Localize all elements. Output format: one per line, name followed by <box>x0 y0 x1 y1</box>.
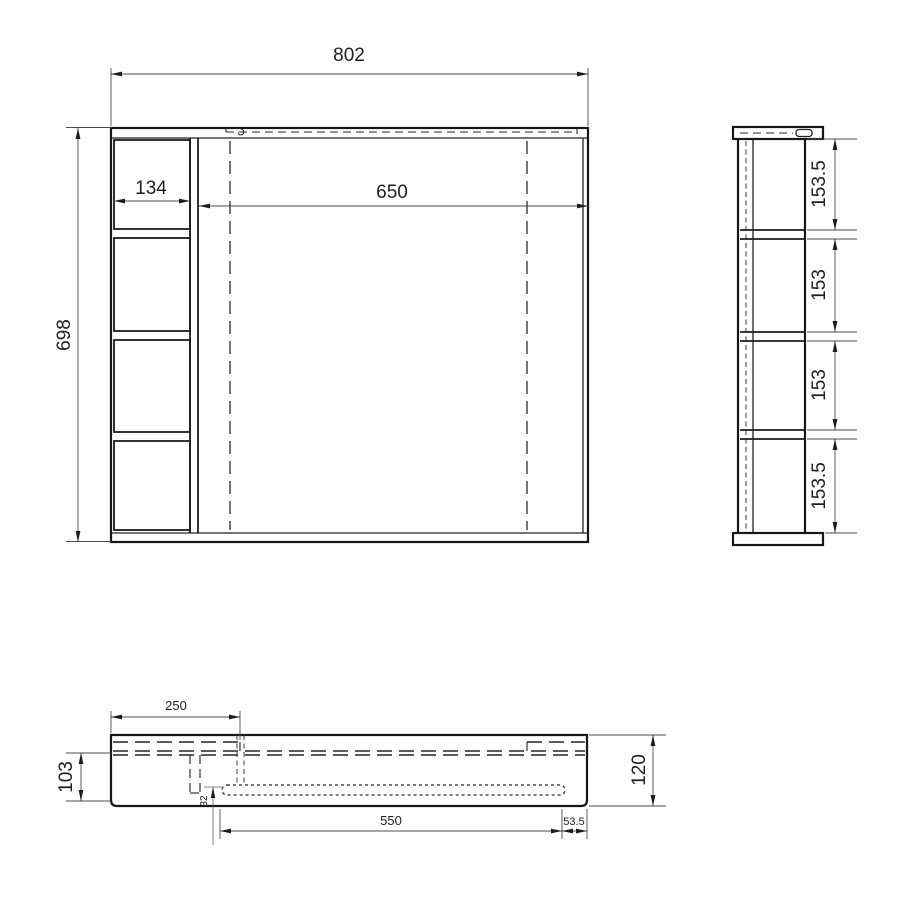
side-segment-label-3: 153 <box>810 355 830 415</box>
back-panel-width-label: 250 <box>146 699 206 712</box>
side-segment-label-1: 153.5 <box>810 154 830 214</box>
overall-depth-label: 120 <box>630 740 650 800</box>
overall-height-label: 698 <box>55 305 75 365</box>
bottom-dim-120 <box>589 735 666 806</box>
front-view-linework <box>66 68 588 542</box>
technical-drawing-canvas: 802 698 134 650 153.5 153 153 153.5 250 … <box>0 0 900 900</box>
shelf-width-label: 134 <box>111 179 191 198</box>
body-depth-label: 103 <box>57 747 77 807</box>
groove-length-label: 550 <box>361 814 421 827</box>
overall-width-label: 802 <box>309 46 389 65</box>
bottom-hidden-lines <box>113 735 585 795</box>
groove-right-offset-label: 53.5 <box>554 817 594 828</box>
side-segment-label-2: 153 <box>810 255 830 315</box>
side-bottom-cap <box>733 533 823 545</box>
front-dim-650 <box>199 204 588 209</box>
front-dim-802 <box>111 68 588 126</box>
front-dim-134 <box>114 199 190 204</box>
bottom-groove <box>222 785 565 795</box>
side-view-linework <box>733 127 857 545</box>
groove-edge-inset-label: 32 <box>200 786 212 816</box>
drawing-linework <box>0 0 900 900</box>
side-segment-label-4: 153.5 <box>810 456 830 516</box>
side-shelf-dividers <box>740 230 805 439</box>
mirror-width-label: 650 <box>352 183 432 202</box>
